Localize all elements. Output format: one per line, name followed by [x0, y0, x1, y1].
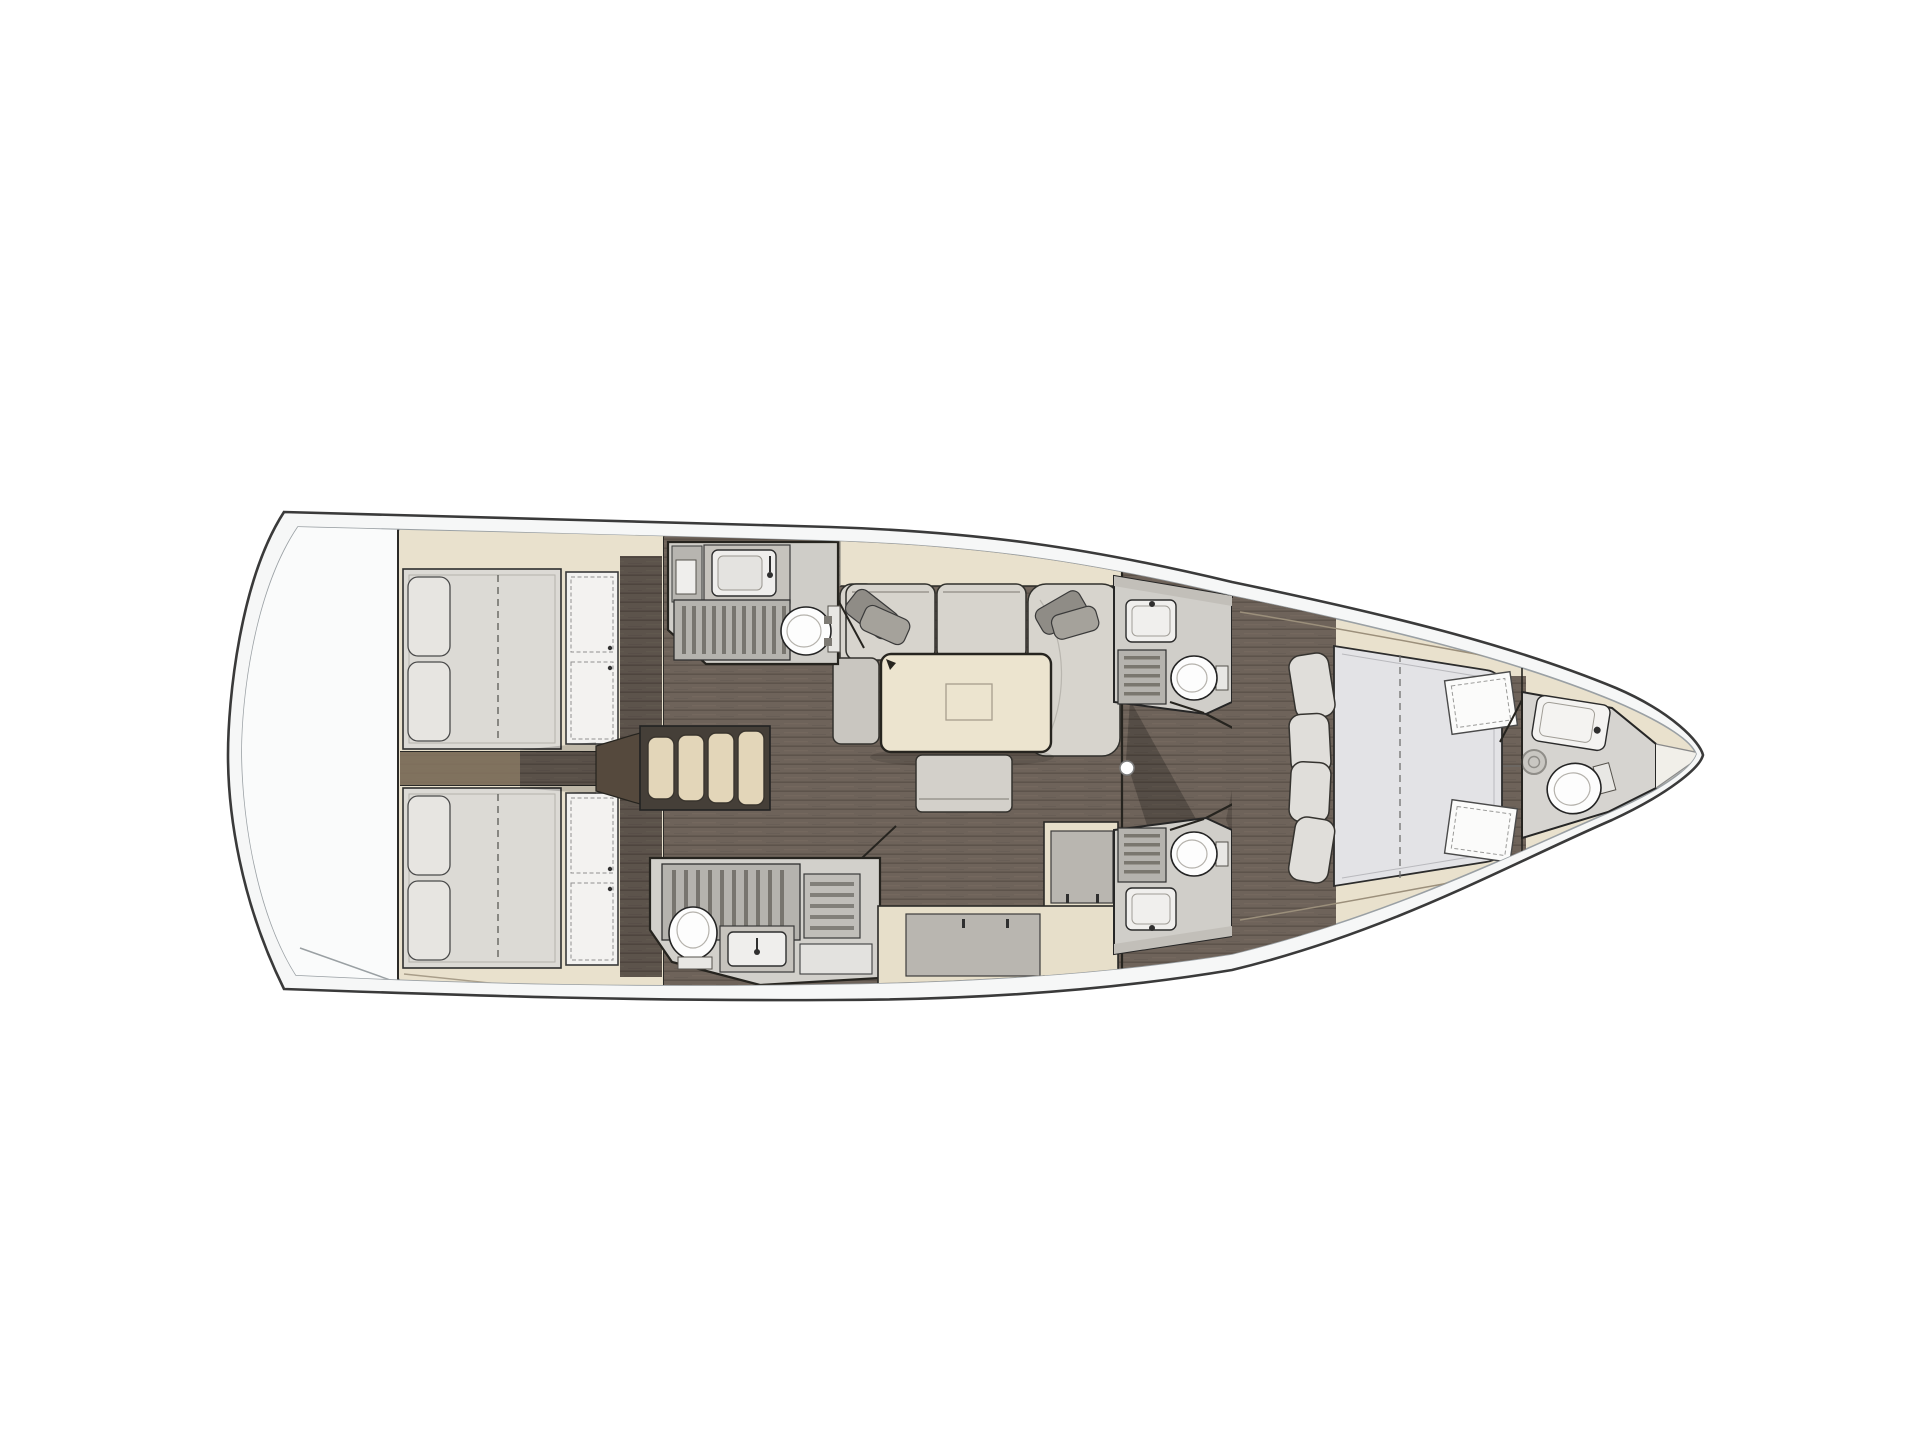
- overhead-locker: [1445, 672, 1518, 735]
- toilet-icon: [1171, 832, 1217, 876]
- step: [648, 737, 674, 799]
- door-handle: [608, 867, 612, 871]
- aft-head-starboard: [668, 542, 864, 664]
- pillow: [408, 796, 450, 875]
- toilet-tank: [1216, 666, 1228, 690]
- sink-basin: [718, 556, 762, 590]
- door-handle: [608, 646, 612, 650]
- faucet-icon: [754, 949, 760, 955]
- toilet-hinge: [824, 616, 832, 624]
- shower-drain-icon: [1522, 750, 1546, 774]
- handle-icon: [1066, 894, 1069, 903]
- aft-cabin-port: [400, 786, 690, 1006]
- headboard-cushion: [1288, 761, 1331, 823]
- door-knob-icon: [1120, 761, 1134, 775]
- toilet-icon: [1171, 656, 1217, 700]
- yacht-layout-page: [0, 0, 1920, 1440]
- wardrobe: [566, 572, 618, 744]
- door-handle: [608, 887, 612, 891]
- wardrobe: [566, 793, 618, 965]
- step: [738, 731, 764, 805]
- toilet-icon: [781, 607, 831, 655]
- steps-shadow: [520, 742, 596, 794]
- passage-wood-light: [400, 752, 520, 786]
- saloon-table: [881, 654, 1051, 752]
- aft-cabin-starboard: [400, 524, 664, 752]
- companionway-threshold: [596, 733, 640, 804]
- pillow: [408, 577, 450, 656]
- handle-icon: [962, 919, 965, 928]
- ottoman-bench: [916, 755, 1012, 812]
- head-locker: [800, 944, 872, 974]
- faucet-icon: [1149, 601, 1155, 607]
- pillow: [408, 662, 450, 741]
- lazarette-floor: [180, 500, 398, 1000]
- appliance-front: [1051, 831, 1113, 903]
- sofa-back-cushion: [937, 584, 1026, 660]
- handle-icon: [1096, 894, 1099, 903]
- pouf-seat: [833, 658, 879, 744]
- toilet-tank: [678, 957, 712, 969]
- cistern: [676, 560, 696, 594]
- faucet-icon: [1149, 925, 1155, 931]
- handle-icon: [1006, 919, 1009, 928]
- stern-lazarette: [180, 500, 424, 1000]
- faucet-icon: [767, 572, 773, 578]
- toilet-hinge: [824, 638, 832, 646]
- forward-head-port: [1114, 818, 1232, 954]
- appliance-front: [906, 914, 1040, 976]
- door-handle: [608, 666, 612, 670]
- yacht-deck-plan: [0, 0, 1920, 1440]
- toilet-icon: [669, 907, 717, 959]
- step: [678, 735, 704, 801]
- floor-shade: [620, 556, 662, 752]
- toilet-tank: [1216, 842, 1228, 866]
- step: [708, 733, 734, 803]
- forward-head-starboard: [1114, 576, 1232, 714]
- pillow: [408, 881, 450, 960]
- overhead-locker: [1445, 800, 1518, 863]
